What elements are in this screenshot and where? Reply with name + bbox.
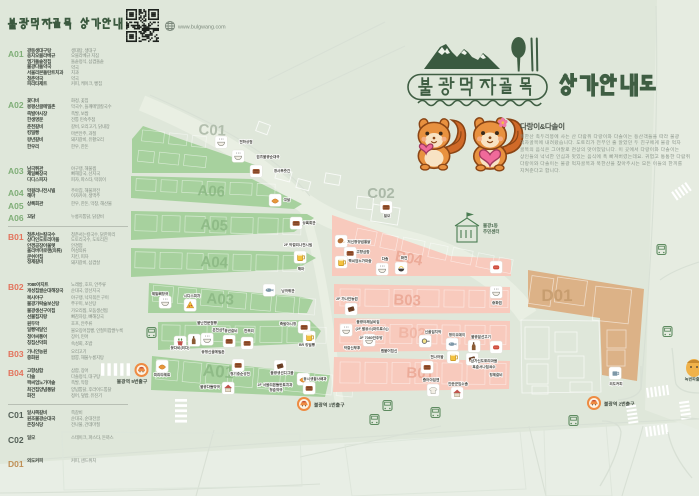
svg-text:화전: 화전 bbox=[401, 255, 408, 260]
svg-text:한부리: 한부리 bbox=[244, 328, 254, 333]
svg-text:(2F 팔공스(마드로스)): (2F 팔공스(마드로스)) bbox=[355, 326, 389, 331]
svg-text:족발야시장: 족발야시장 bbox=[280, 321, 297, 326]
svg-text:A06: A06 bbox=[197, 182, 225, 200]
svg-text:몽년갈비: 몽년갈비 bbox=[224, 328, 237, 333]
svg-text:고향삼합: 고향삼합 bbox=[356, 249, 370, 254]
svg-text:불광다돌약국: 불광다돌약국 bbox=[200, 384, 221, 389]
svg-text:전나어왐: 전나어왐 bbox=[430, 354, 444, 359]
svg-text:흑춘서나칩곡수: 흑춘서나칩곡수 bbox=[472, 364, 496, 369]
svg-text:2F 막걸리나전시빌: 2F 막걸리나전시빌 bbox=[284, 242, 313, 247]
svg-text:2F 서울리본돌탄트치과: 2F 서울리본돌탄트치과 bbox=[258, 382, 294, 387]
svg-text:뱀불어짐신: 뱀불어짐신 bbox=[381, 348, 398, 353]
svg-text:2F 7080안주방: 2F 7080안주방 bbox=[359, 335, 383, 340]
svg-text:불광역 1번출구: 불광역 1번출구 bbox=[314, 402, 345, 409]
svg-text:저신정양념통닭: 저신정양념통닭 bbox=[347, 239, 371, 244]
svg-text:제일뼈장국: 제일뼈장국 bbox=[152, 291, 169, 296]
svg-text:A05: A05 bbox=[200, 216, 228, 234]
svg-text:A04: A04 bbox=[200, 253, 229, 271]
svg-text:해마: 해마 bbox=[298, 266, 305, 271]
svg-text:경사푸줏간: 경사푸줏간 bbox=[274, 168, 291, 173]
svg-text:녹번파출소: 녹번파출소 bbox=[685, 376, 699, 382]
svg-text:BR 킹밀빵: BR 킹밀빵 bbox=[299, 342, 316, 347]
svg-text:주민센터: 주민센터 bbox=[483, 228, 500, 235]
svg-text:시디스피자: 시디스피자 bbox=[184, 293, 201, 298]
svg-text:불광1동: 불광1동 bbox=[483, 222, 498, 229]
svg-text:피리타제트: 피리타제트 bbox=[154, 372, 171, 377]
svg-text:정이모데이: 정이모데이 bbox=[449, 332, 466, 337]
svg-text:청춘약국: 청춘약국 bbox=[269, 387, 283, 392]
svg-text:꽃다비(외다): 꽃다비(외다) bbox=[171, 345, 191, 350]
svg-text:불광야채실비집: 불광야채실비집 bbox=[356, 319, 379, 324]
svg-text:삼가신도토리마을: 삼가신도토리마을 bbox=[471, 358, 498, 363]
svg-text:막걸신부후: 막걸신부후 bbox=[344, 345, 361, 350]
svg-text:다솔: 다솔 bbox=[382, 256, 389, 261]
svg-text:2F 가나안농원: 2F 가나안농원 bbox=[336, 296, 358, 301]
svg-text:A03: A03 bbox=[206, 290, 234, 308]
svg-text:불난전문점빵: 불난전문점빵 bbox=[197, 320, 218, 325]
svg-text:C02: C02 bbox=[367, 185, 395, 202]
svg-text:원즈불광순대국: 원즈불광순대국 bbox=[256, 154, 280, 159]
svg-text:www.bulgwang.com: www.bulgwang.com bbox=[177, 24, 226, 30]
svg-text:불광생선디그볼: 불광생선디그볼 bbox=[270, 370, 294, 375]
svg-text:중정신골메밀촌: 중정신골메밀촌 bbox=[201, 349, 225, 354]
svg-text:짝씨엄노가마솥: 짝씨엄노가마솥 bbox=[348, 258, 372, 263]
svg-text:상록회관: 상록회관 bbox=[302, 220, 316, 225]
svg-text:전하상점: 전하상점 bbox=[239, 139, 252, 144]
svg-text:외도커피: 외도커피 bbox=[609, 381, 622, 386]
svg-text:칭제갈비: 칭제갈비 bbox=[489, 372, 502, 377]
svg-text:중화원: 중화원 bbox=[492, 300, 502, 305]
svg-text:B03: B03 bbox=[393, 292, 421, 310]
svg-text:불광분선고기: 불광분선고기 bbox=[471, 334, 491, 339]
svg-text:동시생활사배과: 동시생활사배과 bbox=[303, 376, 327, 381]
svg-text:안준군임소솔: 안준군임소솔 bbox=[448, 381, 469, 386]
svg-text:꼬닭: 꼬닭 bbox=[284, 197, 291, 202]
svg-text:신골집지막: 신골집지막 bbox=[425, 329, 442, 334]
svg-text:줄어야집앤: 줄어야집앤 bbox=[423, 377, 440, 382]
svg-text:일모: 일모 bbox=[384, 213, 391, 218]
svg-text:청기충순성전: 청기충순성전 bbox=[230, 371, 251, 376]
svg-text:D01: D01 bbox=[541, 286, 572, 305]
svg-text:남극튀관: 남극튀관 bbox=[281, 288, 295, 293]
